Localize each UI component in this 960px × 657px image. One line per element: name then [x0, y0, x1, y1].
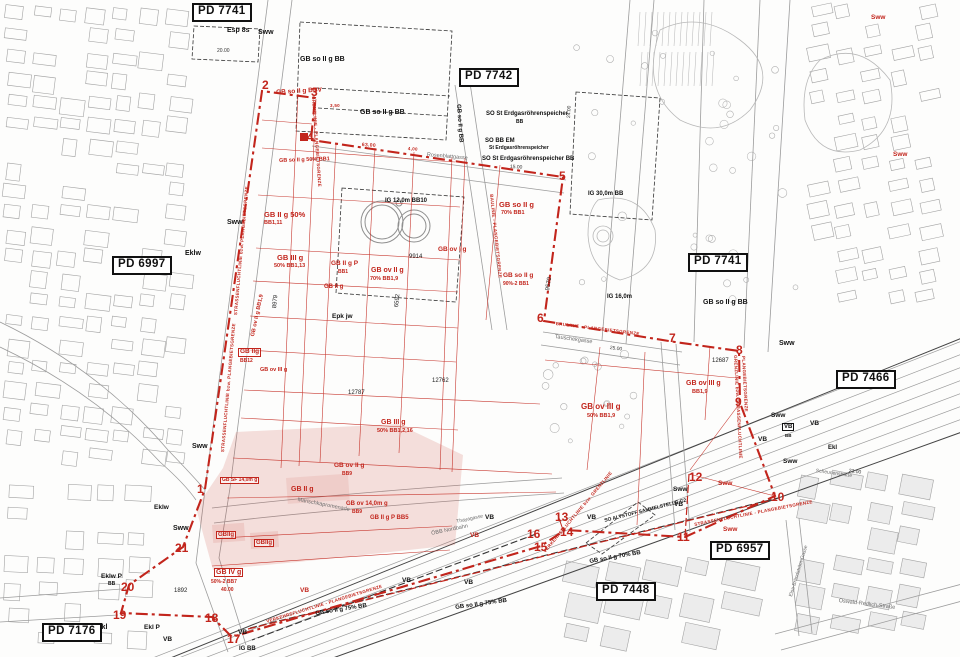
land-use-label: St Erdgasröhrenspeicher	[489, 146, 549, 151]
zoning-label: GB ov III g	[260, 368, 287, 374]
zoning-label: BB9	[342, 472, 352, 477]
zoning-plan-map: PD 7741PD 7742PD 6997PD 7741PD 7466PD 69…	[0, 0, 960, 657]
land-use-label: Eklw	[185, 250, 201, 257]
zoning-label: 50%-2 BB7	[211, 580, 237, 585]
zoning-label: GB ov II g	[371, 267, 404, 274]
zoning-label: BB1,11	[264, 221, 282, 227]
land-use-label: Ekl P	[144, 625, 160, 632]
zoning-label: Sww	[723, 527, 737, 534]
land-use-label: VB	[464, 580, 473, 587]
plan-document-label: PD 7466	[836, 370, 896, 389]
zoning-label: BB1,9	[692, 390, 708, 396]
land-use-label: GB so II g BB	[300, 56, 345, 63]
zoning-label: GB ov I g	[438, 247, 467, 254]
fluchtlinie-annotation: 4,00	[408, 147, 418, 152]
boundary-point-number: 9	[735, 396, 742, 408]
boundary-point-number: 10	[771, 491, 784, 503]
land-use-label: VB	[674, 502, 683, 509]
land-use-label: Sww	[783, 459, 797, 466]
land-use-label: Epk jw	[332, 314, 353, 321]
land-use-label: IG 30,0m BB	[588, 191, 623, 197]
land-use-label: Esp 8s	[227, 27, 250, 34]
boundary-point-number: 15	[534, 541, 547, 553]
zoning-label: GB SF 14,0m g	[220, 477, 259, 484]
land-use-label: VB	[782, 423, 794, 431]
zoning-label: GB II g	[291, 486, 314, 493]
zoning-label: GB II g 50%	[264, 211, 305, 219]
zoning-label: BB9	[352, 510, 362, 515]
zoning-label: 70% BB1,9	[370, 277, 398, 283]
land-use-label: SO St Erdgasröhrenspeicher	[486, 111, 568, 117]
boundary-point-number: 16	[527, 528, 540, 540]
boundary-point-number: 20	[121, 581, 134, 593]
land-use-label: VB	[810, 421, 819, 428]
land-use-label: BB	[516, 120, 523, 125]
parcel-number: 9914	[409, 254, 422, 260]
park-and-structures	[361, 22, 892, 280]
boundary-point-number: 3	[311, 86, 318, 98]
land-use-label: BB	[108, 582, 115, 587]
boundary-point-number: 18	[205, 612, 218, 624]
land-use-label: Sww	[771, 413, 785, 420]
parcel-number: 1892	[174, 588, 187, 594]
land-use-label: Sww	[173, 525, 189, 532]
plan-document-label: PD 7742	[459, 68, 519, 87]
land-use-label: Ekl	[828, 445, 837, 451]
boundary-point-number: 21	[175, 542, 188, 554]
land-use-label: GB so II g BB	[703, 299, 748, 306]
land-use-label: IG 12,0m BB10	[385, 198, 427, 204]
zoning-label: GB IIg	[238, 348, 261, 357]
plan-document-label: PD 6997	[112, 256, 172, 275]
zoning-label: VB	[300, 588, 309, 595]
land-use-label: GB so II g BB	[360, 109, 405, 116]
land-use-label: VB	[402, 578, 411, 585]
land-use-label: IG 16,0m	[607, 294, 632, 300]
boundary-point-number: 8	[736, 344, 743, 356]
zoning-label: 40.00	[221, 588, 234, 593]
zoning-label: GB II g P	[331, 261, 358, 268]
zoning-label: GBIIg	[254, 539, 274, 547]
zoning-label: 70% BB1	[501, 211, 525, 217]
land-use-label: VB	[758, 437, 767, 444]
boundary-point-number: 1	[197, 483, 204, 495]
zoning-label: 50% BB1,9	[587, 414, 615, 420]
land-use-label: VB	[163, 637, 172, 644]
zoning-label: GB ov II g	[334, 463, 364, 470]
land-use-label: VB	[587, 515, 596, 522]
zoning-label: 90%-2 BB1	[503, 282, 529, 287]
zoning-label: GB ov III g	[581, 403, 621, 411]
fluchtlinie-annotation: 3,50	[330, 104, 340, 109]
zoning-label: VB	[470, 533, 479, 540]
zoning-label: GB ov III g	[686, 380, 721, 387]
land-use-label: SO BB EM	[485, 138, 515, 144]
zoning-label: GB II g	[324, 284, 343, 290]
land-use-label: Sww	[258, 29, 274, 36]
zoning-label: GB so II g	[503, 273, 533, 280]
boundary-point-number: 11	[677, 531, 690, 543]
parcel-number: 12787	[348, 390, 365, 396]
plan-linework	[0, 0, 960, 657]
boundary-point-number: 13	[555, 511, 568, 523]
zoning-label: Sww	[718, 481, 732, 488]
boundary-point-number: 19	[113, 609, 126, 621]
boundary-point-number: 6	[537, 312, 544, 324]
boundary-point-number: 17	[227, 633, 240, 645]
zoning-label: 50% BB1,13	[274, 264, 305, 270]
zoning-label: GBIIg	[216, 531, 236, 539]
land-use-label: Sww	[227, 219, 243, 226]
land-use-label: Sww	[192, 443, 208, 450]
zoning-label: 50% BB1,2,16	[377, 429, 413, 435]
parcel-number: 12762	[432, 378, 449, 384]
land-use-label: SO St Erdgasröhrenspeicher BB	[482, 156, 574, 162]
boundary-point-number: 14	[560, 526, 573, 538]
plan-document-label: PD 7176	[42, 623, 102, 642]
land-use-label: Sww	[779, 340, 795, 347]
dimension-label: 15.00	[510, 165, 523, 171]
boundary-point-number: 2	[262, 79, 269, 91]
plan-document-label: PD 7741	[688, 253, 748, 272]
street-linework	[0, 0, 960, 652]
boundary-point-number: 12	[689, 471, 702, 483]
land-use-label: Eklw P	[101, 574, 122, 581]
land-use-label: IG BB	[239, 646, 256, 652]
land-use-label: Sww	[673, 487, 687, 494]
land-use-label: VB	[485, 515, 494, 522]
zoning-label: BB12	[240, 359, 253, 364]
land-use-label: BB	[785, 434, 792, 439]
plan-document-label: PD 7741	[192, 3, 252, 22]
zoning-label: GB II g P BB5	[370, 515, 409, 521]
plan-document-label: PD 7448	[596, 582, 656, 601]
plan-document-label: PD 6957	[710, 541, 770, 560]
zoning-label: GB III g	[277, 254, 303, 262]
parcel-number: 12687	[712, 358, 729, 364]
zoning-label: Sww	[893, 152, 907, 159]
zoning-label: GB so II g	[499, 201, 534, 209]
boundary-point-number: 4	[307, 131, 314, 143]
fluchtlinie-annotation: 63.00	[362, 143, 376, 149]
boundary-point-number: 7	[669, 332, 676, 344]
zoning-label: GB ov 14,0m g	[346, 501, 388, 507]
zoning-label: Sww	[871, 15, 885, 22]
zoning-label: GB III g	[381, 419, 406, 426]
boundary-point-number: 5	[559, 170, 566, 182]
dimension-label: 20.00	[217, 49, 230, 54]
land-use-label: Eklw	[154, 505, 169, 512]
zoning-label: BB1	[338, 270, 348, 275]
pink-zone-overlay	[196, 424, 463, 570]
zoning-label: GB IV g	[214, 568, 243, 577]
